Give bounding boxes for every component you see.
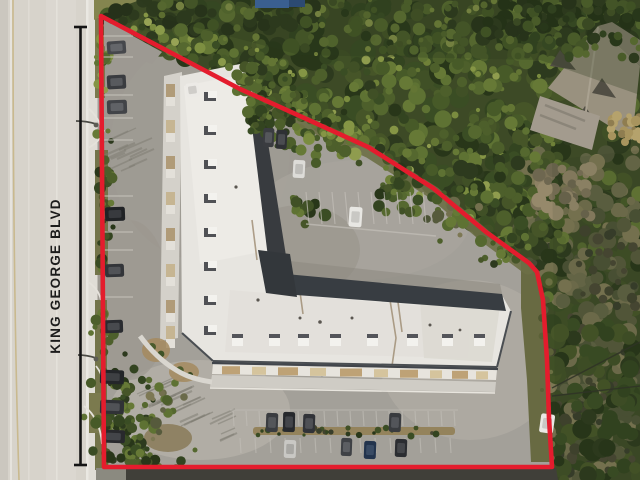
svg-text:KING GEORGE BLVD: KING GEORGE BLVD (48, 198, 63, 353)
